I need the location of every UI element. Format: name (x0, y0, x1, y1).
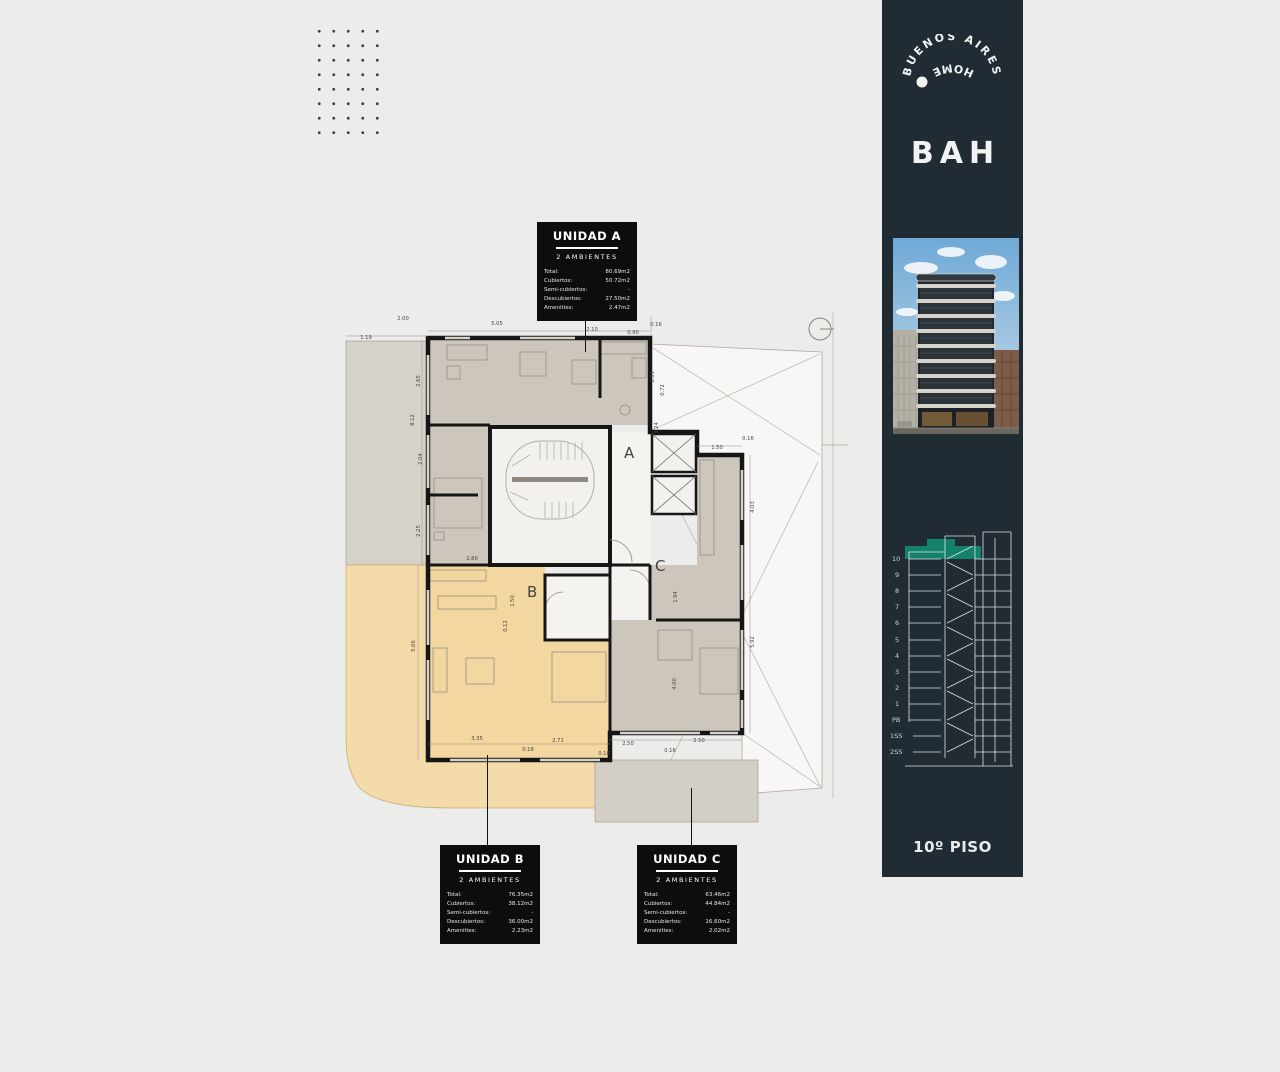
balcony-slabs (916, 284, 996, 408)
area-value: 16.60m2 (705, 918, 730, 927)
area-row: Cubiertos:38.12m2 (447, 900, 533, 909)
area-label: Semi-cubiertos: (447, 909, 490, 918)
floor-label: 4 (895, 652, 899, 660)
divider (459, 870, 521, 872)
unit-areas: Total:80.69m2 Cubiertos:50.72m2 Semi-cub… (544, 268, 630, 313)
area-label: Total: (447, 891, 462, 900)
dim-label: 0.12 (503, 620, 509, 632)
brand-wordmark: BAH (882, 136, 1023, 171)
area-value: - (628, 286, 630, 295)
unit-a-letter: A (624, 444, 635, 462)
floor-label: 8 (895, 587, 899, 595)
floor-caption: 10º PISO (882, 838, 1023, 856)
terrace-grey-unit-c (595, 760, 758, 822)
dim-label: 8.12 (410, 414, 416, 426)
unit-b-bath-fill (545, 575, 610, 640)
area-label: Cubiertos: (447, 900, 475, 909)
unidad-c-connector (691, 788, 692, 845)
dim-label: 2.25 (416, 525, 422, 537)
floor-label: 9 (895, 571, 899, 579)
floor-label: 2SS (890, 748, 902, 756)
dim-label: 5.92 (750, 636, 756, 648)
dim-label: 1.91 (650, 371, 656, 383)
floor-label: 3 (895, 668, 899, 676)
unit-c-kitchen-fill (697, 455, 742, 565)
dot-grid-decoration (310, 22, 382, 134)
unit-title: UNIDAD C (644, 852, 730, 866)
divider (656, 870, 718, 872)
stair-core (490, 427, 610, 565)
floor-label: 7 (895, 603, 899, 611)
area-row: Semi-cubiertos:- (447, 909, 533, 918)
dim-label: 1.50 (510, 595, 516, 607)
area-value: 36.00m2 (508, 918, 533, 927)
unit-subtitle: 2 AMBIENTES (447, 876, 533, 884)
area-row: Semi-cubiertos:- (644, 909, 730, 918)
brand-sidebar: BUENOS AIRES HOME BAH (882, 0, 1023, 877)
area-row: Amenities:2.47m2 (544, 304, 630, 313)
dim-label: 4.03 (750, 501, 756, 513)
divider (556, 247, 618, 249)
area-row: Descubiertos:16.60m2 (644, 918, 730, 927)
elevator-shafts (652, 434, 696, 514)
area-row: Total:80.69m2 (544, 268, 630, 277)
unidad-b-card: UNIDAD B 2 AMBIENTES Total:76.35m2 Cubie… (440, 845, 540, 944)
building-section-diagram: 10 9 8 7 6 5 4 3 2 1 PB 1SS 2SS (889, 522, 1017, 777)
logo-dot-icon (917, 77, 928, 88)
main-tower (916, 274, 996, 434)
dim-label: 5.05 (491, 321, 503, 327)
dim-label: 3.35 (471, 736, 483, 742)
dim-label: 0.90 (627, 330, 639, 336)
area-value: 76.35m2 (508, 891, 533, 900)
dim-label: 0.16 (522, 747, 534, 753)
unit-subtitle: 2 AMBIENTES (644, 876, 730, 884)
area-row: Descubiertos:36.00m2 (447, 918, 533, 927)
floor-label: 6 (895, 619, 899, 627)
car (897, 421, 912, 427)
north-compass-icon (809, 318, 834, 340)
unidad-a-card: UNIDAD A 2 AMBIENTES Total:80.69m2 Cubie… (537, 222, 637, 321)
dim-label: 0.16 (650, 322, 662, 328)
unit-areas: Total:63.46m2 Cubiertos:44.84m2 Semi-cub… (644, 891, 730, 936)
street (893, 428, 1019, 434)
unit-areas: Total:76.35m2 Cubiertos:38.12m2 Semi-cub… (447, 891, 533, 936)
dim-label: 0.16 (664, 748, 676, 754)
floor-label: 1 (895, 700, 899, 708)
dim-label: 1.50 (711, 445, 723, 451)
area-label: Semi-cubiertos: (544, 286, 587, 295)
area-row: Amenities:2.23m2 (447, 927, 533, 936)
area-label: Amenities: (644, 927, 673, 936)
area-value: 2.47m2 (609, 304, 630, 313)
brochure-page: 1.19 2.00 5.05 2.10 0.90 0.16 2.65 8.12 … (0, 0, 1280, 1072)
dim-label: 0.16 (742, 436, 754, 442)
area-value: 27.50m2 (605, 295, 630, 304)
area-row: Cubiertos:50.72m2 (544, 277, 630, 286)
dim-label: 3.24 (654, 422, 660, 434)
dim-label: 2.50 (622, 741, 634, 747)
area-value: 2.02m2 (709, 927, 730, 936)
area-label: Descubiertos: (447, 918, 485, 927)
hall-fill-2 (610, 565, 650, 620)
area-value: 2.23m2 (512, 927, 533, 936)
dim-label: 0.72 (660, 384, 666, 396)
dim-label: 2.04 (418, 453, 424, 465)
area-row: Descubiertos:27.50m2 (544, 295, 630, 304)
area-label: Descubiertos: (544, 295, 582, 304)
area-label: Total: (644, 891, 659, 900)
area-row: Cubiertos:44.84m2 (644, 900, 730, 909)
area-value: 38.12m2 (508, 900, 533, 909)
dim-label: 2.00 (397, 316, 409, 322)
stair-zigzag (947, 546, 973, 752)
unit-b-letter: B (527, 583, 537, 601)
floor-label: 10 (892, 555, 900, 563)
dim-label: 1.19 (360, 335, 372, 341)
right-neighbor-building (994, 350, 1019, 434)
floor-label: 2 (895, 684, 899, 692)
area-label: Total: (544, 268, 559, 277)
highlight-10th-floor (905, 539, 981, 559)
left-neighbor-building (893, 330, 919, 434)
dim-label: 2.71 (552, 738, 564, 744)
area-label: Cubiertos: (544, 277, 572, 286)
dim-label: 2.10 (586, 327, 598, 333)
floor-label: 5 (895, 636, 899, 644)
area-label: Cubiertos: (644, 900, 672, 909)
floor-label: 1SS (890, 732, 902, 740)
unidad-c-card: UNIDAD C 2 AMBIENTES Total:63.46m2 Cubie… (637, 845, 737, 944)
unit-title: UNIDAD B (447, 852, 533, 866)
dim-label: 2.50 (693, 738, 705, 744)
area-value: - (728, 909, 730, 918)
logo-arc-text-2: HOME (928, 61, 975, 80)
area-value: 80.69m2 (605, 268, 630, 277)
dim-label: 0.18 (598, 751, 610, 757)
floor-label: PB (892, 716, 900, 724)
dim-label: 1.94 (673, 591, 679, 603)
dim-label: 2.65 (416, 375, 422, 387)
dim-label: 2.80 (466, 556, 478, 562)
area-row: Total:63.46m2 (644, 891, 730, 900)
area-value: - (531, 909, 533, 918)
area-label: Descubiertos: (644, 918, 682, 927)
area-value: 44.84m2 (705, 900, 730, 909)
section-lines (905, 532, 1013, 766)
area-row: Total:76.35m2 (447, 891, 533, 900)
area-value: 63.46m2 (705, 891, 730, 900)
unit-title: UNIDAD A (544, 229, 630, 243)
area-label: Amenities: (447, 927, 476, 936)
unidad-b-connector (487, 755, 488, 845)
building-render-photo (893, 238, 1019, 434)
area-value: 50.72m2 (605, 277, 630, 286)
unit-subtitle: 2 AMBIENTES (544, 253, 630, 261)
dim-label: 4.00 (672, 678, 678, 690)
area-row: Semi-cubiertos:- (544, 286, 630, 295)
section-floor-labels: 10 9 8 7 6 5 4 3 2 1 PB 1SS 2SS (890, 555, 902, 756)
floor-plan: 1.19 2.00 5.05 2.10 0.90 0.16 2.65 8.12 … (330, 300, 860, 840)
dim-label: 5.66 (411, 640, 417, 652)
area-row: Amenities:2.02m2 (644, 927, 730, 936)
circular-logo: BUENOS AIRES HOME (882, 34, 1023, 138)
area-label: Semi-cubiertos: (644, 909, 687, 918)
area-label: Amenities: (544, 304, 573, 313)
unit-c-letter: C (655, 557, 665, 575)
